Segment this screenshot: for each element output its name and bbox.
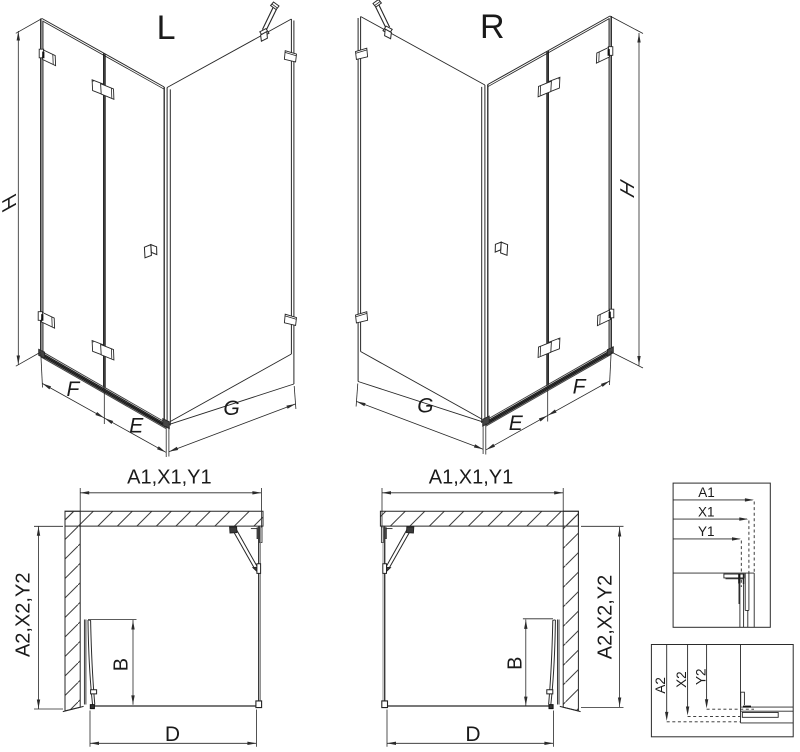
svg-text:A2: A2 <box>653 677 668 694</box>
svg-text:X2: X2 <box>674 671 689 688</box>
svg-text:A2,X2,Y2: A2,X2,Y2 <box>13 573 35 658</box>
svg-text:A2,X2,Y2: A2,X2,Y2 <box>595 575 617 660</box>
svg-text:E: E <box>129 415 144 438</box>
svg-text:D: D <box>165 723 180 746</box>
svg-text:D: D <box>465 723 480 746</box>
svg-text:A1: A1 <box>698 485 715 500</box>
svg-text:G: G <box>223 397 239 420</box>
svg-text:X1: X1 <box>698 504 715 519</box>
svg-text:F: F <box>66 378 80 401</box>
svg-text:B: B <box>504 657 526 670</box>
svg-text:Y1: Y1 <box>698 524 715 539</box>
svg-text:E: E <box>509 412 524 435</box>
svg-text:L: L <box>157 9 176 47</box>
svg-text:A1,X1,Y1: A1,X1,Y1 <box>127 466 212 488</box>
svg-text:F: F <box>573 375 587 398</box>
svg-text:B: B <box>110 658 132 671</box>
svg-text:R: R <box>480 8 505 46</box>
svg-text:Y2: Y2 <box>694 668 709 685</box>
svg-text:A1,X1,Y1: A1,X1,Y1 <box>429 466 514 488</box>
svg-text:G: G <box>417 394 433 417</box>
